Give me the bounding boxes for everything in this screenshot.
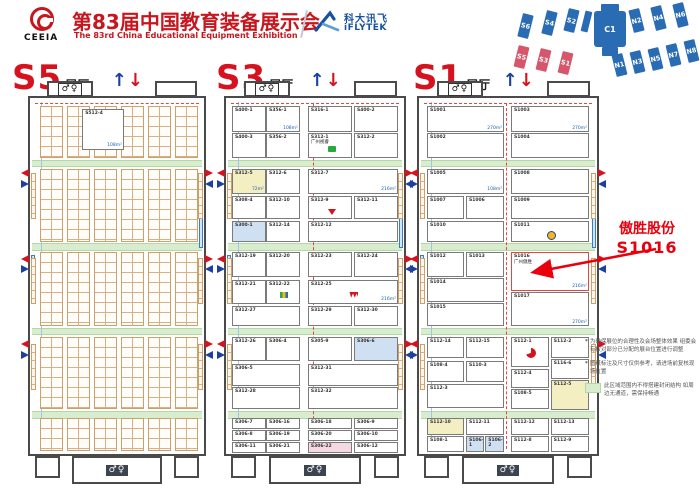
restroom-top: ♂♀ xyxy=(437,81,483,97)
booth-id: S112-1 xyxy=(514,339,547,344)
booth-id: S106-2 xyxy=(488,438,502,449)
booth-S1003: S1003270m² xyxy=(511,106,589,132)
wall-booth-stack xyxy=(398,344,403,390)
ceeia-logo-icon xyxy=(30,7,54,31)
booth-S312-14: S312-14 xyxy=(266,221,300,242)
booth-id: S308-4 xyxy=(235,198,264,203)
side-entrance-arrow xyxy=(21,255,29,263)
booth-S316-1: S316-1 xyxy=(308,106,352,132)
restroom-icon: ♂♀ xyxy=(255,83,280,96)
arrow-up-icon: ↑ xyxy=(112,70,127,91)
corner-room xyxy=(374,456,399,478)
booth-S312-5: S312-572m² xyxy=(232,169,266,194)
side-entrance-arrow xyxy=(217,265,225,273)
booth-id: S1003 xyxy=(514,108,587,113)
side-entrance-arrow xyxy=(21,265,29,273)
booth-S1010: S1010 xyxy=(427,221,504,242)
booth-id: S1005 xyxy=(430,171,502,176)
restroom-top: ♂♀ xyxy=(47,81,92,97)
side-entrance-arrow xyxy=(410,180,418,188)
booth-S312-31: S312-31 xyxy=(308,364,398,386)
restroom-icon: ♂♀ xyxy=(304,465,327,476)
hall-s3-floor: S400-1S356-1108m²S400-3S356-2S316-1S400-… xyxy=(226,98,404,454)
wall-booth-stack xyxy=(227,173,232,219)
booth-S1016: S1016广州傲胜216m² xyxy=(511,252,589,290)
booth-id: S312-7 xyxy=(311,171,396,176)
overview-hall-S6: S6 xyxy=(517,13,533,39)
booth-S306-21: S306-21 xyxy=(266,442,300,453)
side-entrance-arrow xyxy=(410,265,418,273)
booth-S108-1: S108-1 xyxy=(427,436,464,452)
overview-hall-S3: S3 xyxy=(536,48,552,72)
raw-booth-grid xyxy=(148,252,171,326)
booth-id: S316-1 xyxy=(311,108,350,113)
booth-size: 108m² xyxy=(107,143,122,148)
booth-S306-16: S306-16 xyxy=(266,418,300,429)
booth-S112-8: S112-8 xyxy=(511,436,549,452)
raw-booth-grid xyxy=(175,169,198,242)
booth-S300-1: S300-1 xyxy=(232,221,266,242)
corner-room xyxy=(231,456,256,478)
booth-S306-12: S306-12 xyxy=(354,442,398,453)
booth-id: S305-9 xyxy=(311,339,350,344)
highlight-callout: 傲胜股份 S1016 xyxy=(596,218,698,257)
side-entrance-arrow xyxy=(217,351,225,359)
wall-booth-stack xyxy=(420,173,425,219)
booth-id: S312-21 xyxy=(235,282,264,287)
sponsor-name-en: iFLYTEK xyxy=(344,23,387,33)
entrance-arrows: ↑↓ xyxy=(503,72,534,90)
hall-s3-building: ♂♀ ↑↓ S400-1S356-1108m²S400-3S356-2S316-… xyxy=(224,96,406,456)
booth-S112-14: S112-14 xyxy=(427,337,464,358)
booth-S1013: S1013 xyxy=(466,252,504,277)
side-entrance-arrow xyxy=(205,255,213,263)
booth-id: S108-4 xyxy=(430,363,462,368)
booth-size: 72m² xyxy=(252,187,264,192)
raw-booth-grid xyxy=(121,169,144,242)
callout-booth-id: S1016 xyxy=(596,238,698,257)
booth-S312-29: S312-29 xyxy=(308,306,352,327)
booth-S112-9: S112-9 xyxy=(551,436,589,452)
booth-S306-5: S306-5 xyxy=(232,364,300,386)
booth-S312-32: S312-32 xyxy=(308,387,398,408)
booth-id: S312-20 xyxy=(269,254,298,259)
booth-S312-23: S312-23 xyxy=(308,252,352,277)
aisle-guide xyxy=(424,103,591,104)
overview-hall-N7: N7 xyxy=(666,43,682,67)
side-entrance-arrow xyxy=(410,169,418,177)
hall-s5-floor: S512-4108m² xyxy=(30,98,204,454)
booth-id: S312-29 xyxy=(311,308,350,313)
booth-id: S306-7 xyxy=(235,420,264,425)
side-entrance-arrow xyxy=(410,255,418,263)
wall-booth-stack xyxy=(198,258,203,304)
exhibitor-logo-icon xyxy=(526,348,536,358)
booth-id: S306-9 xyxy=(357,420,396,425)
booth-id: S306-22 xyxy=(311,444,350,449)
booth-id: S312-27 xyxy=(235,308,298,313)
corner-room xyxy=(35,456,59,478)
booth-id: S112-8 xyxy=(514,438,547,443)
booth-S312-2: S312-2 xyxy=(354,133,398,158)
booth-id: S1001 xyxy=(430,108,502,113)
legend-text: 此区域范围内不得搭建封闭结构 如周边无通道，需保持畅通 xyxy=(604,382,698,399)
booth-S306-19: S306-19 xyxy=(266,430,300,441)
booth-S1011: S1011 xyxy=(511,221,589,242)
raw-booth-grid xyxy=(175,252,198,326)
wall-booth-stack xyxy=(31,173,36,219)
booth-S306-9: S306-9 xyxy=(354,418,398,429)
booth-id: S1006 xyxy=(469,198,502,203)
aisle-guide xyxy=(231,103,398,104)
booth-id: S306-10 xyxy=(357,432,396,437)
page-title-en: The 83rd China Educational Equipment Exh… xyxy=(74,31,298,40)
booth-S312-10: S312-10 xyxy=(266,196,300,219)
booth-id: S112-11 xyxy=(469,420,502,425)
restroom-icon: ♂♀ xyxy=(448,83,473,96)
raw-booth-grid xyxy=(67,418,90,451)
arrow-down-icon: ↓ xyxy=(128,70,143,91)
raw-booth-grid xyxy=(67,169,90,242)
booth-id: S312-6 xyxy=(269,171,298,176)
booth-S312-28: S312-28 xyxy=(232,387,300,408)
booth-S1001: S1001270m² xyxy=(427,106,504,132)
booth-id: S106-1 xyxy=(469,438,482,449)
booth-id: S1012 xyxy=(430,254,462,259)
booth-S312-6: S312-6 xyxy=(266,169,300,194)
booth-S106-2: S106-2 xyxy=(485,436,504,452)
raw-booth-grid xyxy=(121,106,144,158)
booth-id: S1002 xyxy=(430,135,502,140)
booth-size: 216m² xyxy=(381,297,396,302)
overview-hall-N5: N5 xyxy=(648,47,664,71)
south-vestibule: ♂♀ xyxy=(462,456,555,484)
booth-id: S110-3 xyxy=(469,363,502,368)
raw-booth-grid xyxy=(121,337,144,410)
booth-id: S112-10 xyxy=(430,420,462,425)
booth-S306-10: S306-10 xyxy=(354,430,398,441)
booth-S308-4: S308-4 xyxy=(232,196,266,219)
booth-exhibitor: 广州视睿 xyxy=(311,140,350,145)
aisle-guide xyxy=(506,103,507,448)
booth-id: S112-3 xyxy=(430,386,502,391)
wall-booth-stack xyxy=(31,344,36,390)
exhibitor-logo-icon xyxy=(280,292,288,298)
booth-id: S1015 xyxy=(430,305,502,310)
hall-s5-building: ♂♀ ↑↓ S512-4108m² ♂♀ xyxy=(28,96,206,456)
top-room xyxy=(354,81,397,97)
booth-S1006: S1006 xyxy=(466,196,504,219)
booth-S306-7: S306-7 xyxy=(232,418,266,429)
booth-id: S312-30 xyxy=(357,308,396,313)
raw-booth-grid xyxy=(40,337,63,410)
restroom-top: ♂♀ xyxy=(244,81,290,97)
booth-id: S1010 xyxy=(430,223,502,228)
booth-id: S400-3 xyxy=(235,135,264,140)
raw-booth-grid xyxy=(175,418,198,451)
booth-id: S312-28 xyxy=(235,389,298,394)
booth-S356-1: S356-1108m² xyxy=(266,106,300,132)
exhibitor-logo-icon xyxy=(328,209,336,215)
booth-S312-7: S312-7216m² xyxy=(308,169,398,194)
booth-id: S306-16 xyxy=(269,420,298,425)
booth-id: S312-11 xyxy=(357,198,396,203)
floorplan-poster: CEEIA 第83届中国教育装备展示会 The 83rd China Educa… xyxy=(0,0,700,495)
booth-id: S312-31 xyxy=(311,366,396,371)
arrow-up-icon: ↑ xyxy=(503,70,518,91)
booth-id: S312-32 xyxy=(311,389,396,394)
overview-hall-N3: N3 xyxy=(630,50,646,74)
booth-id: S312-2 xyxy=(357,135,396,140)
legend-open-area: 此区域范围内不得搭建封闭结构 如周边无通道，需保持畅通 xyxy=(585,382,698,399)
booth-S312-25: S312-25216m² xyxy=(308,280,398,304)
booth-id: S312-24 xyxy=(357,254,396,259)
side-entrance-arrow xyxy=(21,169,29,177)
booth-S512-4: S512-4108m² xyxy=(82,109,124,150)
booth-S312-26: S312-26 xyxy=(232,337,266,362)
wall-booth-stack xyxy=(227,344,232,390)
note-item: * 图纸标注及尺寸仅供参考，请进场前复核现场位置 xyxy=(585,360,698,377)
note-item: * 为确保展位的合理性及会场整体效果 组委会有权对部分已分配的展台位置进行调整 xyxy=(585,338,698,355)
booth-S312-30: S312-30 xyxy=(354,306,398,327)
booth-id: S312-9 xyxy=(311,198,350,203)
booth-S1014: S1014 xyxy=(427,278,504,301)
wall-booth-stack xyxy=(591,173,596,219)
exhibitor-logo-icon xyxy=(349,292,358,298)
raw-booth-grid xyxy=(67,252,90,326)
booth-S312-19: S312-19 xyxy=(232,252,266,277)
booth-S112-5: S112-5 xyxy=(551,380,589,410)
booth-id: S306-21 xyxy=(269,444,298,449)
booth-id: S306-11 xyxy=(235,444,264,449)
booth-S1005: S1005108m² xyxy=(427,169,504,194)
booth-size: 108m² xyxy=(487,187,502,192)
arrow-down-icon: ↓ xyxy=(326,70,341,91)
ceeia-abbr: CEEIA xyxy=(24,33,58,43)
booth-S400-3: S400-3 xyxy=(232,133,266,158)
booth-id: S312-19 xyxy=(235,254,264,259)
side-entrance-arrow xyxy=(21,180,29,188)
side-entrance-arrow xyxy=(410,351,418,359)
booth-S116-6: S116-6 xyxy=(551,359,589,379)
top-room xyxy=(155,81,197,97)
side-entrance-arrow xyxy=(598,265,606,273)
booth-id: S112-5 xyxy=(554,382,587,387)
side-entrance-arrow xyxy=(21,340,29,348)
restroom-icon: ♂♀ xyxy=(58,83,83,96)
booth-S306-8: S306-8 xyxy=(232,430,266,441)
booth-id: S356-1 xyxy=(269,108,298,113)
booth-id: S512-4 xyxy=(85,111,122,116)
raw-booth-grid xyxy=(40,106,63,158)
wall-booth-stack xyxy=(198,344,203,390)
booth-id: S1004 xyxy=(514,135,587,140)
booth-exhibitor: 广州傲胜 xyxy=(514,260,587,265)
booth-S112-1: S112-1 xyxy=(511,337,549,367)
booth-S1009: S1009 xyxy=(511,196,589,219)
booth-S312-1: S312-1广州视睿 xyxy=(308,133,352,158)
booth-id: S356-2 xyxy=(269,135,298,140)
booth-id: S112-13 xyxy=(554,420,587,425)
booth-S1015: S1015 xyxy=(427,303,504,326)
legend-swatch xyxy=(585,383,601,393)
booth-S356-2: S356-2 xyxy=(266,133,300,158)
booth-id: S112-9 xyxy=(554,438,587,443)
booth-id: S312-5 xyxy=(235,171,264,176)
booth-id: S300-1 xyxy=(235,223,264,228)
raw-booth-grid xyxy=(94,169,117,242)
booth-S312-24: S312-24 xyxy=(354,252,398,277)
booth-S400-2: S400-2 xyxy=(354,106,398,132)
side-entrance-arrow xyxy=(205,180,213,188)
booth-S305-9: S305-9 xyxy=(308,337,352,362)
booth-S1017: S1017270m² xyxy=(511,292,589,327)
corridor-band xyxy=(228,243,402,250)
side-entrance-arrow xyxy=(410,340,418,348)
booth-S400-1: S400-1 xyxy=(232,106,266,132)
arrow-up-icon: ↑ xyxy=(310,70,325,91)
booth-id: S112-4 xyxy=(514,371,547,376)
booth-id: S1007 xyxy=(430,198,462,203)
booth-S112-3: S112-3 xyxy=(427,384,504,409)
booth-id: S1017 xyxy=(514,294,587,299)
booth-S306-22: S306-22 xyxy=(308,442,352,453)
raw-booth-grid xyxy=(94,252,117,326)
wall-booth-stack xyxy=(420,344,425,390)
booth-S312-11: S312-11 xyxy=(354,196,398,219)
side-entrance-arrow xyxy=(217,169,225,177)
booth-S112-13: S112-13 xyxy=(551,418,589,434)
booth-id: S1008 xyxy=(514,171,587,176)
booth-S108-4: S108-4 xyxy=(427,361,464,382)
booth-id: S306-19 xyxy=(269,432,298,437)
booth-size: 270m² xyxy=(572,126,587,131)
corner-room xyxy=(567,456,592,478)
corridor-band xyxy=(421,328,595,335)
south-vestibule: ♂♀ xyxy=(269,456,362,484)
iflytek-logo-icon xyxy=(314,10,342,38)
aisle-guide xyxy=(35,103,199,104)
booth-id: S306-20 xyxy=(311,432,350,437)
side-entrance-arrow xyxy=(205,265,213,273)
side-entrance-arrow xyxy=(217,340,225,348)
booth-id: S312-26 xyxy=(235,339,264,344)
arrow-down-icon: ↓ xyxy=(519,70,534,91)
raw-booth-grid xyxy=(40,418,63,451)
restroom-icon: ♂♀ xyxy=(106,465,129,476)
raw-booth-grid xyxy=(40,252,63,326)
booth-S312-27: S312-27 xyxy=(232,306,300,327)
wall-booth-stack xyxy=(398,173,403,219)
booth-id: S112-12 xyxy=(514,420,547,425)
booth-S306-4: S306-4 xyxy=(266,337,300,362)
booth-id: S112-2 xyxy=(554,339,587,344)
overview-hall-S2: S2 xyxy=(563,8,579,33)
overview-hall-S4: S4 xyxy=(541,10,557,36)
booth-id: S116-6 xyxy=(554,361,587,366)
side-entrance-arrow xyxy=(205,169,213,177)
corridor-band xyxy=(421,243,595,250)
overview-hall-N6: N6 xyxy=(672,2,688,28)
raw-booth-grid xyxy=(148,169,171,242)
corridor-band xyxy=(228,160,402,167)
booth-S312-9: S312-9 xyxy=(308,196,352,219)
booth-id: S1009 xyxy=(514,198,587,203)
booth-S112-4: S112-4 xyxy=(511,369,549,389)
entrance-arrows: ↑↓ xyxy=(310,72,341,90)
exhibitor-logo-icon xyxy=(547,231,556,240)
booth-S306-18: S306-18 xyxy=(308,418,352,429)
booth-S1008: S1008 xyxy=(511,169,589,194)
booth-S312-20: S312-20 xyxy=(266,252,300,277)
booth-id: S1013 xyxy=(469,254,502,259)
top-room xyxy=(547,81,590,97)
side-entrance-arrow xyxy=(21,351,29,359)
side-entrance-arrow xyxy=(205,351,213,359)
raw-booth-grid xyxy=(94,337,117,410)
corridor-band xyxy=(32,243,203,250)
wall-booth-stack xyxy=(227,258,232,304)
booth-id: S312-22 xyxy=(269,282,298,287)
raw-booth-grid xyxy=(67,337,90,410)
side-entrance-arrow xyxy=(598,180,606,188)
hall-s1-building: ♂♀ ↑↓ S1001270m²S1003270m²S1002S1004S100… xyxy=(417,96,599,456)
raw-booth-grid xyxy=(94,418,117,451)
booth-S112-2: S112-2 xyxy=(551,337,589,358)
booth-size: 270m² xyxy=(572,320,587,325)
booth-S306-20: S306-20 xyxy=(308,430,352,441)
wall-booth-stack xyxy=(420,258,425,304)
booth-S1007: S1007 xyxy=(427,196,464,219)
booth-S1004: S1004 xyxy=(511,133,589,158)
booth-S312-12: S312-12 xyxy=(308,221,398,242)
raw-booth-grid xyxy=(40,169,63,242)
side-entrance-arrow xyxy=(598,169,606,177)
raw-booth-grid xyxy=(175,106,198,158)
corridor-band xyxy=(228,328,402,335)
booth-id: S312-25 xyxy=(311,282,396,287)
booth-id: S306-5 xyxy=(235,366,298,371)
booth-size: 216m² xyxy=(572,284,587,289)
booth-size: 108m² xyxy=(283,126,298,131)
venue-overview-map: S6S4S2C1N2N4N6S5S3S1N1N3N5N7N8 xyxy=(502,2,700,76)
booth-S1012: S1012 xyxy=(427,252,464,277)
side-entrance-arrow xyxy=(217,255,225,263)
raw-booth-grid xyxy=(148,106,171,158)
booth-id: S1014 xyxy=(430,280,502,285)
booth-S1002: S1002 xyxy=(427,133,504,158)
corridor-band xyxy=(32,328,203,335)
corridor-band xyxy=(32,160,203,167)
overview-hall-N1: N1 xyxy=(612,53,628,77)
booth-S112-11: S112-11 xyxy=(466,418,504,434)
wall-booth-stack xyxy=(398,258,403,304)
booth-id: S112-15 xyxy=(469,339,502,344)
booth-S112-15: S112-15 xyxy=(466,337,504,358)
raw-booth-grid xyxy=(121,252,144,326)
booth-S312-21: S312-21 xyxy=(232,280,266,304)
booth-S106-1: S106-1 xyxy=(466,436,484,452)
side-entrance-arrow xyxy=(217,180,225,188)
booth-id: S108-1 xyxy=(430,438,462,443)
booth-S108-5: S108-5 xyxy=(511,389,549,409)
booth-id: S306-8 xyxy=(235,432,264,437)
booth-id: S1011 xyxy=(514,223,587,228)
booth-id: S112-14 xyxy=(430,339,462,344)
booth-id: S400-1 xyxy=(235,108,264,113)
corner-room xyxy=(424,456,449,478)
wall-booth-stack xyxy=(591,258,596,304)
